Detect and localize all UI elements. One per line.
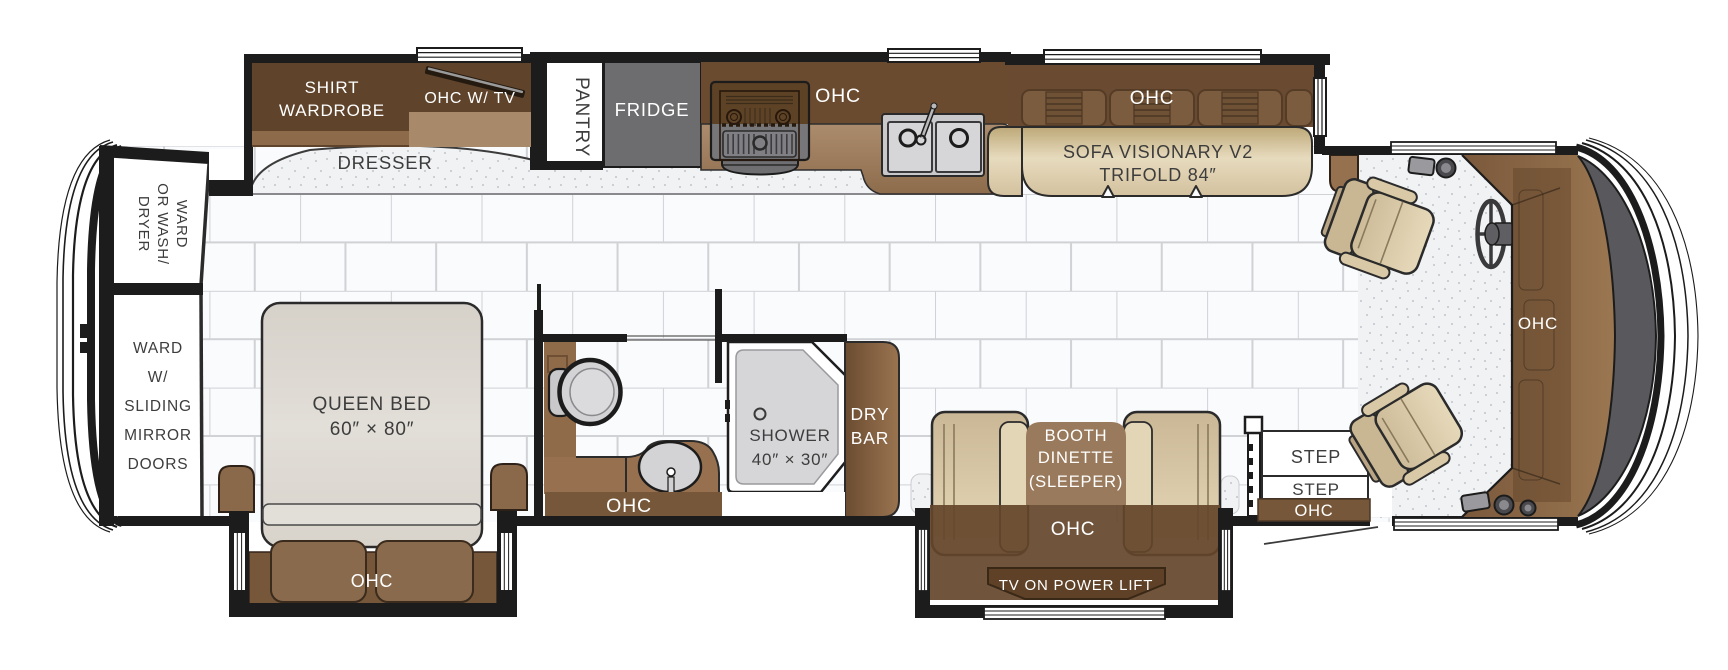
svg-text:STEP: STEP bbox=[1291, 447, 1341, 467]
svg-text:WARD: WARD bbox=[133, 340, 183, 357]
svg-text:BOOTH: BOOTH bbox=[1045, 427, 1108, 445]
svg-text:SHOWER: SHOWER bbox=[749, 426, 830, 445]
svg-text:SLIDING: SLIDING bbox=[124, 398, 192, 415]
svg-text:40″ × 30″: 40″ × 30″ bbox=[752, 450, 828, 469]
svg-text:DRESSER: DRESSER bbox=[337, 152, 432, 173]
svg-text:OHC: OHC bbox=[351, 571, 393, 591]
svg-text:STEP: STEP bbox=[1292, 480, 1340, 499]
svg-text:FRIDGE: FRIDGE bbox=[615, 99, 690, 120]
svg-text:OHC: OHC bbox=[1051, 519, 1096, 540]
svg-text:DRYER: DRYER bbox=[135, 196, 152, 252]
svg-text:DINETTE: DINETTE bbox=[1038, 449, 1114, 467]
svg-text:OR WASH/: OR WASH/ bbox=[154, 183, 171, 265]
svg-text:SHIRT: SHIRT bbox=[305, 78, 360, 97]
svg-text:MIRROR: MIRROR bbox=[124, 427, 192, 444]
svg-text:OHC: OHC bbox=[1518, 314, 1558, 333]
svg-text:W/: W/ bbox=[148, 369, 169, 386]
svg-text:60″ × 80″: 60″ × 80″ bbox=[330, 419, 415, 440]
svg-text:WARDROBE: WARDROBE bbox=[279, 101, 385, 120]
svg-text:OHC W/ TV: OHC W/ TV bbox=[424, 90, 515, 107]
svg-text:DOORS: DOORS bbox=[128, 456, 189, 473]
svg-text:OHC: OHC bbox=[606, 495, 652, 517]
svg-text:TRIFOLD 84″: TRIFOLD 84″ bbox=[1099, 165, 1216, 185]
svg-text:OHC: OHC bbox=[1294, 502, 1333, 520]
svg-text:(SLEEPER): (SLEEPER) bbox=[1029, 473, 1123, 491]
svg-text:SOFA VISIONARY V2: SOFA VISIONARY V2 bbox=[1063, 142, 1253, 162]
svg-text:PANTRY: PANTRY bbox=[571, 77, 592, 157]
svg-text:QUEEN BED: QUEEN BED bbox=[312, 394, 431, 415]
svg-text:WARD: WARD bbox=[173, 200, 190, 248]
svg-text:DRY: DRY bbox=[850, 404, 889, 424]
svg-text:TV ON POWER LIFT: TV ON POWER LIFT bbox=[999, 577, 1153, 594]
svg-text:OHC: OHC bbox=[815, 85, 861, 107]
svg-text:OHC: OHC bbox=[1130, 88, 1175, 109]
svg-text:BAR: BAR bbox=[851, 428, 889, 448]
